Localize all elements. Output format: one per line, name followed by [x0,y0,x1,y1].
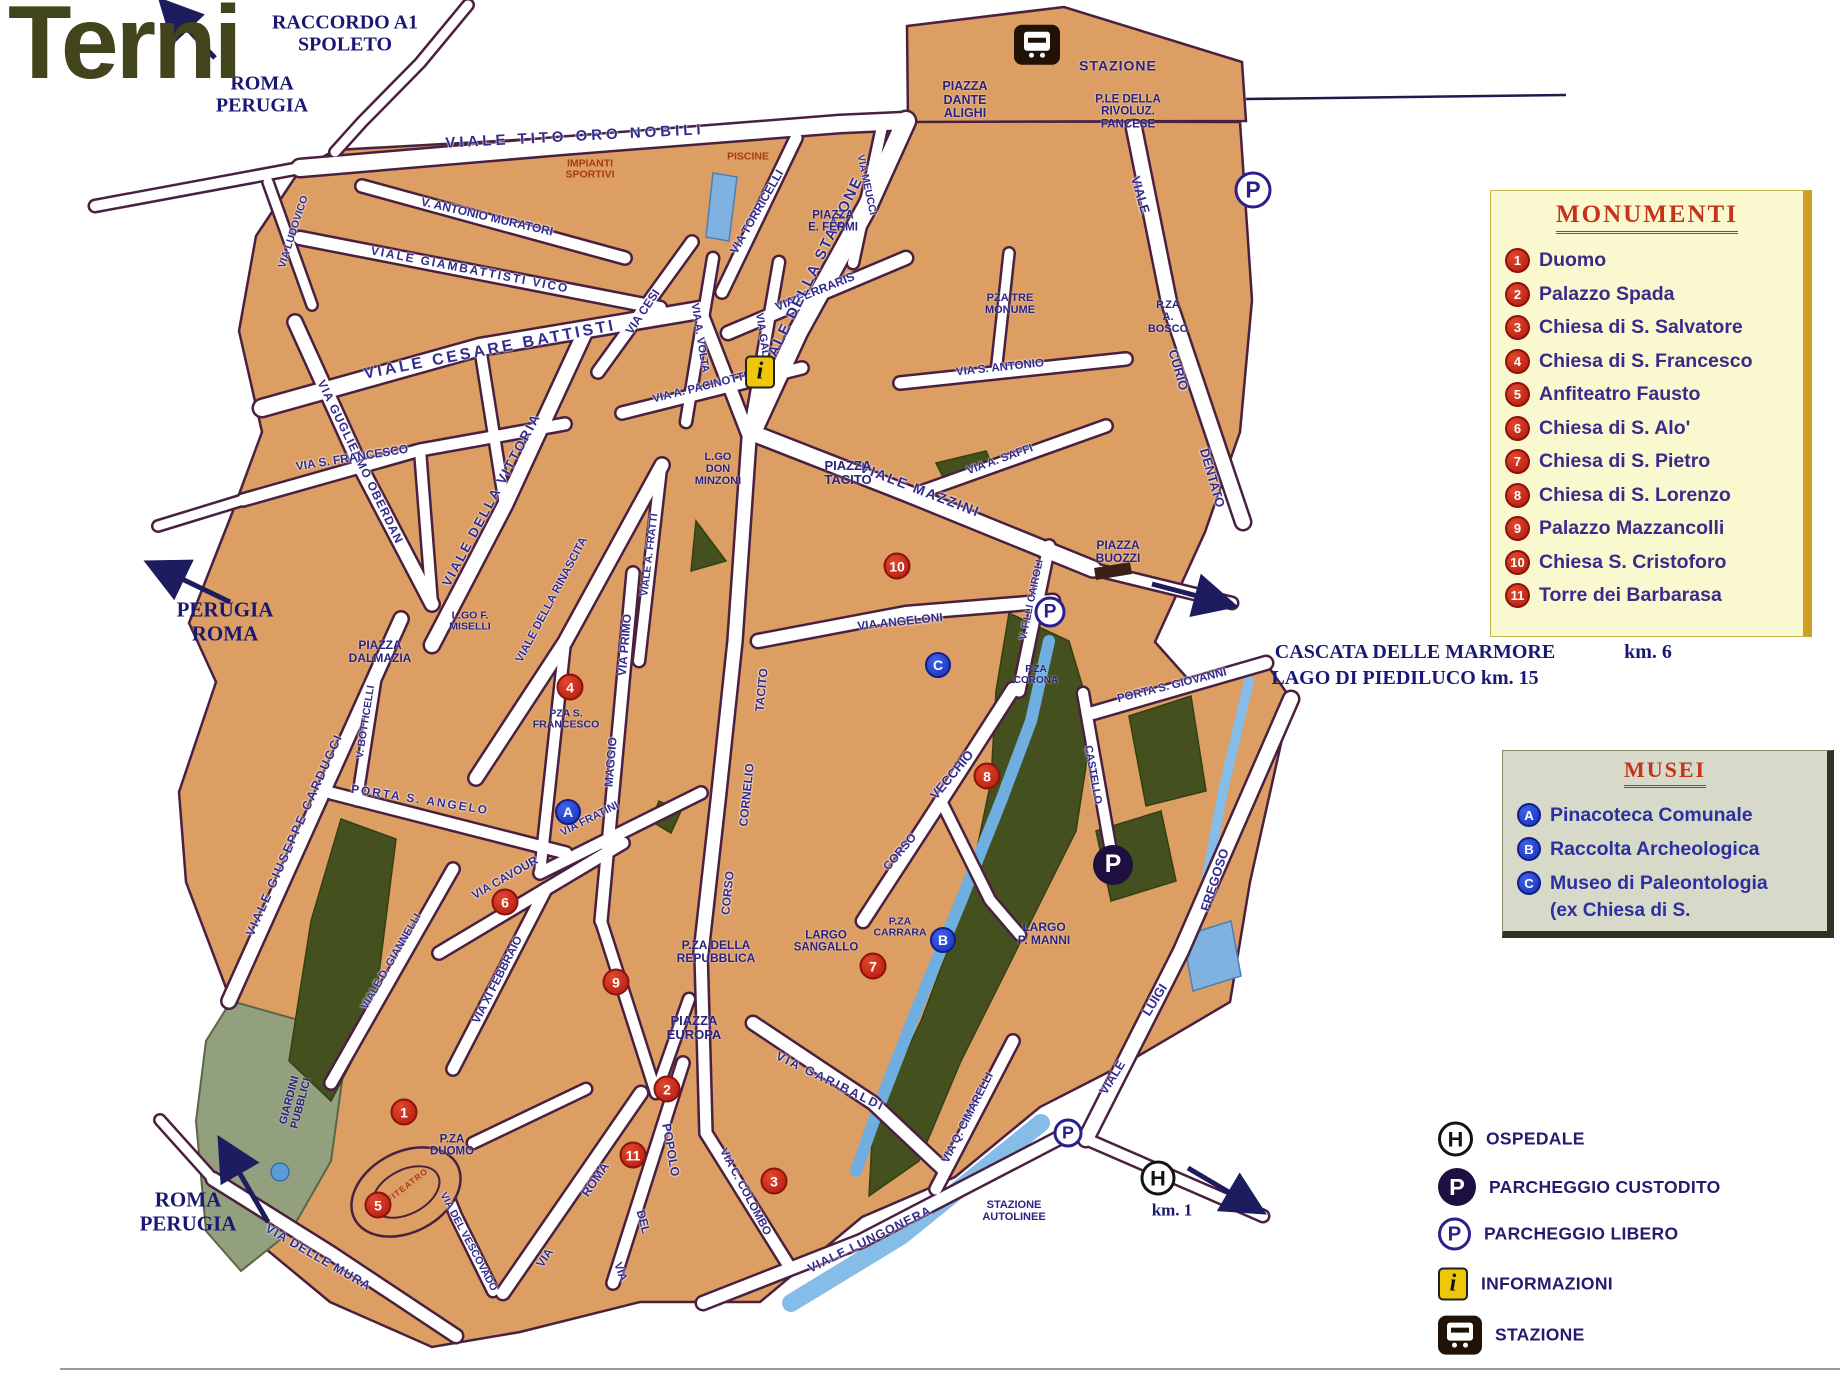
monument-marker-9: 9 [603,969,630,996]
monumenti-legend-item: 5Anfiteatro Fausto [1505,378,1803,412]
monument-marker-10: 10 [884,553,911,580]
monument-name: Chiesa di S. Alo' [1539,417,1690,440]
symbol-label: PARCHEGGIO CUSTODITO [1489,1177,1721,1198]
monument-number-badge: 8 [1505,483,1530,508]
monumenti-legend-item: 2Palazzo Spada [1505,278,1803,312]
symbol-label: PARCHEGGIO LIBERO [1484,1224,1678,1245]
monument-number-badge: 5 [1505,382,1530,407]
monument-marker-6: 6 [492,889,519,916]
museum-letter-badge: A [1517,803,1541,827]
symbols-legend-item: PPARCHEGGIO LIBERO [1438,1218,1678,1251]
train-glyph [1024,32,1051,51]
monument-marker-11: 11 [620,1142,647,1169]
symbols-legend-item: PPARCHEGGIO CUSTODITO [1438,1168,1721,1206]
symbols-legend-item: HOSPEDALE [1438,1122,1585,1157]
musei-legend: MUSEI APinacoteca ComunaleBRaccolta Arch… [1502,750,1834,938]
monument-number-badge: 4 [1505,349,1530,374]
musei-legend-item: CMuseo di Paleontologia [1517,866,1827,900]
terni-city-map: RACCORDO A1 SPOLETOROMA PERUGIAPERUGIA R… [0,0,1840,1376]
museum-marker-C: C [925,652,951,678]
museum-marker-A: A [555,799,581,825]
museum-name: Museo di Paleontologia [1550,872,1768,895]
monument-marker-4: 4 [557,674,584,701]
free-parking-icon: P [1054,1119,1083,1148]
monumenti-legend-item: 9Palazzo Mazzancolli [1505,512,1803,546]
monument-name: Anfiteatro Fausto [1539,383,1700,406]
museum-marker-B: B [930,927,956,953]
monument-marker-2: 2 [654,1076,681,1103]
free-parking-icon: P [1235,172,1272,209]
monument-name: Chiesa di S. Salvatore [1539,316,1743,339]
monumenti-legend-item: 10Chiesa S. Cristoforo [1505,546,1803,580]
guarded-parking-icon: P [1093,845,1133,885]
monument-number-badge: 11 [1505,583,1530,608]
musei-legend-title: MUSEI [1503,757,1827,788]
monument-name: Chiesa di S. Francesco [1539,350,1753,373]
monument-number-badge: 1 [1505,248,1530,273]
free-parking-icon: P [1438,1218,1471,1251]
monument-marker-8: 8 [974,763,1001,790]
musei-legend-note: (ex Chiesa di S. [1503,900,1827,922]
museum-name: Raccolta Archeologica [1550,838,1760,861]
musei-legend-item: APinacoteca Comunale [1517,798,1827,832]
monument-name: Chiesa di S. Lorenzo [1539,484,1731,507]
monument-number-badge: 7 [1505,449,1530,474]
guarded-parking-icon: P [1438,1168,1476,1206]
monumenti-legend-item: 6Chiesa di S. Alo' [1505,412,1803,446]
monument-name: Torre dei Barbarasa [1539,584,1722,607]
monument-name: Palazzo Mazzancolli [1539,517,1724,540]
symbols-legend-item: iINFORMAZIONI [1438,1268,1613,1301]
monument-name: Chiesa S. Cristoforo [1539,551,1726,574]
information-icon: i [745,356,775,389]
symbol-label: STAZIONE [1495,1325,1585,1346]
information-icon: i [1438,1268,1468,1301]
symbol-label: OSPEDALE [1486,1129,1585,1150]
symbols-legend-item: STAZIONE [1438,1316,1585,1355]
monument-marker-7: 7 [860,953,887,980]
monument-name: Palazzo Spada [1539,283,1674,306]
monument-number-badge: 10 [1505,550,1530,575]
free-parking-icon: P [1035,597,1066,628]
train-glyph [1447,1323,1473,1341]
train-station-icon [1014,25,1060,65]
monumenti-legend-item: 11Torre dei Barbarasa [1505,579,1803,613]
monument-number-badge: 6 [1505,416,1530,441]
monument-number-badge: 9 [1505,516,1530,541]
monumenti-legend: MONUMENTI 1Duomo2Palazzo Spada3Chiesa di… [1490,190,1812,637]
monument-number-badge: 3 [1505,315,1530,340]
monumenti-legend-items: 1Duomo2Palazzo Spada3Chiesa di S. Salvat… [1491,234,1803,613]
monumenti-legend-item: 1Duomo [1505,244,1803,278]
symbol-label: INFORMAZIONI [1481,1274,1613,1295]
monument-name: Duomo [1539,249,1606,272]
monumenti-legend-item: 7Chiesa di S. Pietro [1505,445,1803,479]
monumenti-legend-title: MONUMENTI [1491,201,1803,234]
hospital-icon: H [1141,1161,1176,1196]
monument-marker-1: 1 [391,1099,418,1126]
monument-marker-3: 3 [761,1168,788,1195]
musei-legend-item: BRaccolta Archeologica [1517,832,1827,866]
monumenti-legend-item: 3Chiesa di S. Salvatore [1505,311,1803,345]
museum-letter-badge: C [1517,871,1541,895]
monumenti-legend-item: 4Chiesa di S. Francesco [1505,345,1803,379]
museum-name: Pinacoteca Comunale [1550,804,1753,827]
museum-letter-badge: B [1517,837,1541,861]
hospital-icon: H [1438,1122,1473,1157]
page-title: Terni [8,0,240,103]
train-station-icon [1438,1316,1482,1355]
monument-marker-5: 5 [365,1192,392,1219]
monument-number-badge: 2 [1505,282,1530,307]
monumenti-legend-item: 8Chiesa di S. Lorenzo [1505,479,1803,513]
monument-name: Chiesa di S. Pietro [1539,450,1710,473]
musei-legend-items: APinacoteca ComunaleBRaccolta Archeologi… [1503,788,1827,900]
